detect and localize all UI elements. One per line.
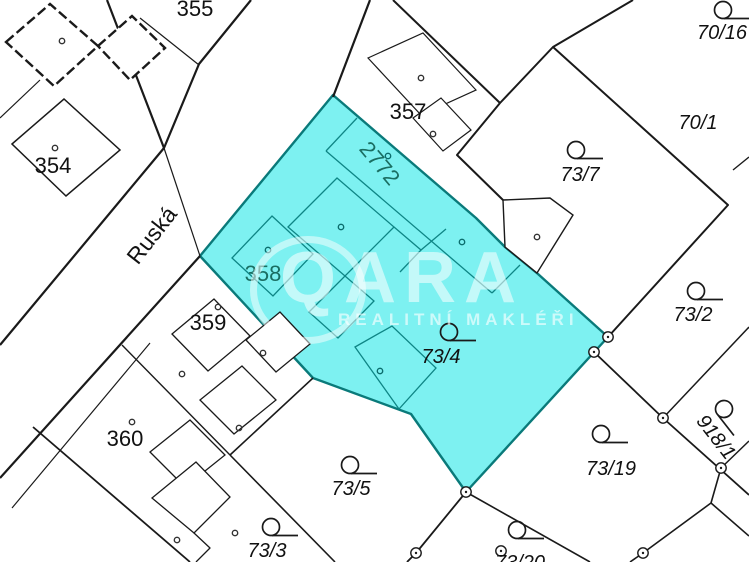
parcel-label-357: 357 (390, 99, 427, 124)
parcel-label-70-16: 70/16 (697, 22, 748, 44)
parcel-label-73-20: 73/20 (495, 552, 545, 562)
cadastral-map: 3553543573593603582772Ruská70/1670/173/7… (0, 0, 749, 562)
boundary-point-center (720, 467, 722, 469)
parcel-label-73-3: 73/3 (248, 540, 287, 562)
boundary-point-center (465, 491, 467, 493)
parcel-label-358: 358 (245, 261, 282, 286)
parcel-label-360: 360 (107, 426, 144, 451)
cadastral-map-viewport: 3553543573593603582772Ruská70/1670/173/7… (0, 0, 749, 562)
parcel-label-355: 355 (177, 0, 214, 21)
parcel-label-73-4: 73/4 (422, 346, 461, 368)
boundary-point-center (662, 417, 664, 419)
parcel-label-73-19: 73/19 (586, 458, 636, 480)
boundary-point-center (642, 552, 644, 554)
boundary-point-center (415, 552, 417, 554)
boundary-point-center (607, 336, 609, 338)
boundary-point-center (593, 351, 595, 353)
parcel-label-70-1: 70/1 (679, 112, 718, 134)
parcel-label-73-5: 73/5 (332, 478, 372, 500)
parcel-label-354: 354 (35, 153, 72, 178)
parcel-label-359: 359 (190, 310, 227, 335)
parcel-label-73-7: 73/7 (561, 164, 601, 186)
parcel-label-73-2: 73/2 (674, 304, 713, 326)
